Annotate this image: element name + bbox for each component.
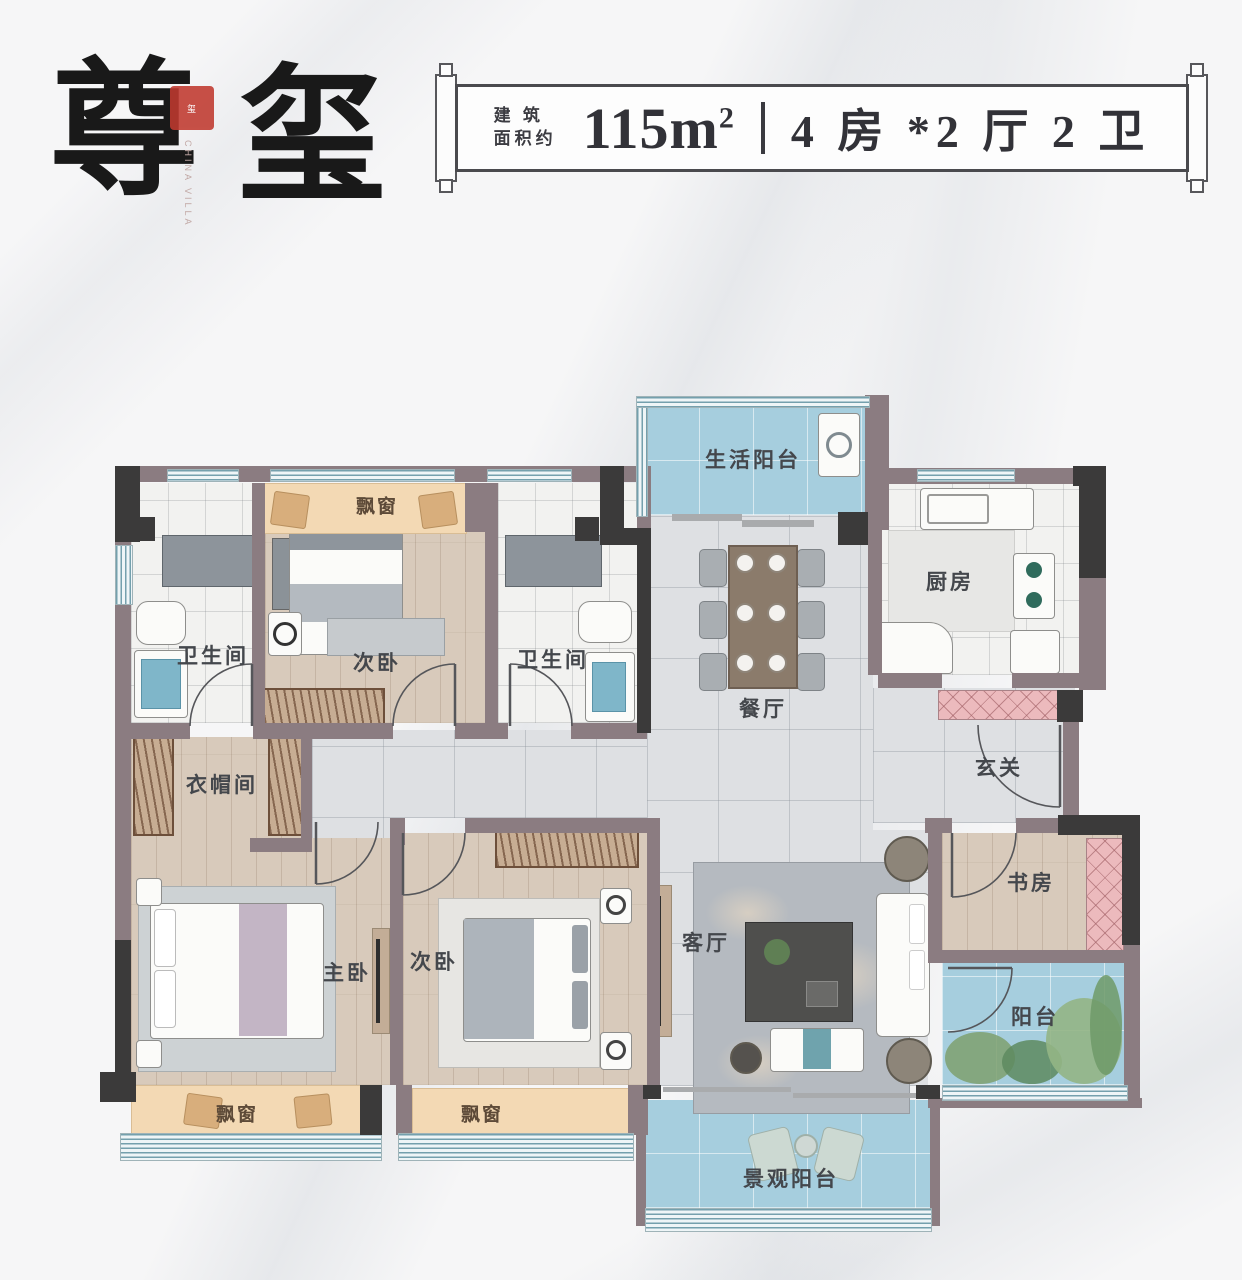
wall [928,950,1124,963]
master-bed [150,903,324,1039]
bay-window-label: 飘窗 [356,492,398,519]
stove [1013,553,1055,619]
sliding-door [663,1087,791,1092]
window-band [917,469,1015,482]
wall [390,818,405,845]
corridor-floor [312,730,647,818]
tv-console [372,928,390,1034]
wall [1063,722,1079,823]
nightstand [136,878,162,906]
dining-chair [699,653,727,691]
room-label-living-room: 客厅 [682,927,730,957]
bay-window-label: 飘窗 [461,1100,503,1127]
plate [767,653,787,673]
room-label-bathroom-2: 卫生间 [517,644,589,674]
column [643,1085,661,1099]
room-label-cloakroom: 衣帽间 [186,769,258,799]
washer-cabinet [268,612,302,656]
bay-pillow [293,1093,332,1129]
toilet [136,601,186,645]
wall [485,483,498,723]
bench [770,1028,864,1072]
room-label-view-balcony: 景观阳台 [743,1163,839,1193]
floor-plan: 生活阳台 厨房 卫生间 次卧 卫生间 餐厅 玄关 衣帽间 主卧 次卧 客厅 书房… [0,0,1242,1280]
room-label-master-bedroom: 主卧 [323,957,371,987]
plate [767,553,787,573]
bed [463,918,591,1042]
column [1122,815,1140,945]
dining-chair [699,549,727,587]
balcony-table [794,1134,818,1158]
nightstand [136,1040,162,1068]
column [360,1085,382,1135]
side-table [884,836,930,882]
bay-frame [120,1133,382,1161]
sliding-door [742,520,814,527]
column [600,466,624,528]
wall [1016,818,1058,833]
column [916,1085,940,1099]
bay-pillow [418,491,458,530]
shower [162,535,260,587]
plate [735,553,755,573]
wall [115,723,190,739]
wall [868,500,882,675]
dining-chair [797,653,825,691]
window-band [167,469,239,482]
room-label-bedroom-bottom: 次卧 [410,946,458,976]
wall [390,845,403,1085]
plate [767,603,787,623]
sliding-door [793,1093,921,1098]
wall [636,1096,646,1226]
wall [253,723,393,739]
room-label-balcony: 阳台 [1011,1001,1059,1031]
window-band [115,545,133,605]
study-closet [1086,838,1124,952]
bay-window-label: 飘窗 [216,1100,258,1127]
wardrobe [133,737,174,836]
sink-basin [592,662,626,712]
room-label-foyer: 玄关 [975,752,1023,782]
wall [1079,578,1106,690]
nightstand [600,888,632,924]
kitchen-counter [876,622,953,674]
view-balcony-frame [645,1208,932,1232]
column [575,517,599,541]
room-label-study: 书房 [1007,867,1055,897]
shower [505,535,602,587]
wall [647,818,660,1085]
plant [1090,975,1122,1075]
column [118,517,155,541]
wall [301,730,312,838]
balcony-sill [942,1085,1128,1101]
bay-frame [398,1133,634,1161]
column [115,940,131,1072]
plate [735,603,755,623]
column [838,512,868,545]
column [100,1072,136,1102]
stool [730,1042,762,1074]
bay-pillow [270,491,310,530]
nightstand [600,1032,632,1070]
room-label-bathroom-1: 卫生间 [177,640,249,670]
sofa [876,893,930,1037]
column [1079,466,1106,578]
coffee-table [745,922,853,1022]
bay-window-bedroom2 [412,1088,630,1137]
kitchen-appliance [1010,630,1060,674]
kitchen-sink-counter [920,488,1034,530]
sliding-door [672,514,742,521]
room-label-bedroom-top: 次卧 [353,647,401,677]
room-label-kitchen: 厨房 [926,566,974,596]
side-table [886,1038,932,1084]
column [1057,690,1083,722]
wall [930,1096,940,1226]
shoe-cabinet [938,690,1060,720]
sink-basin [141,659,181,709]
toilet [578,601,632,643]
window-band [487,469,572,482]
living-balcony-frame [636,400,648,517]
column [637,528,651,733]
wall [878,673,942,688]
wall [571,723,647,739]
living-balcony-frame [636,396,870,408]
wall [465,818,647,833]
wall [1124,945,1140,1103]
room-label-living-balcony: 生活阳台 [705,444,801,474]
dining-chair [797,549,825,587]
wall [928,833,942,953]
wall [455,723,508,739]
page: { "header": { "title_char1": "尊", "title… [0,0,1242,1280]
window-band [270,469,455,482]
wall [465,483,487,532]
plate [735,653,755,673]
washing-machine [818,413,860,477]
dining-chair [699,601,727,639]
wall [396,1085,412,1135]
wall [250,838,312,852]
room-label-dining: 餐厅 [739,693,787,723]
wall [252,483,265,723]
dining-chair [797,601,825,639]
wardrobe [263,688,385,727]
wall [925,818,952,833]
